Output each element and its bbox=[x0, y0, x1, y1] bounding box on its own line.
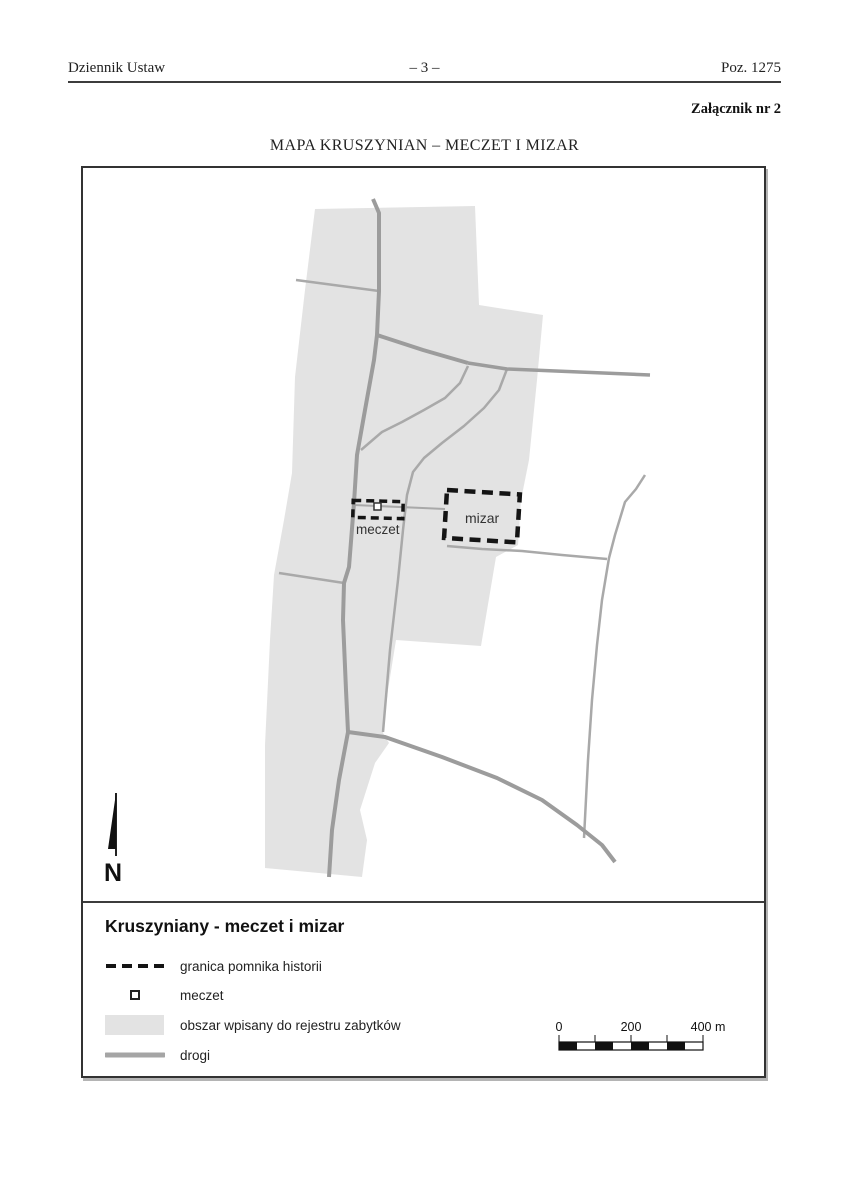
protected-area-polygon bbox=[265, 206, 543, 877]
road-east bbox=[584, 475, 645, 838]
page-header: Dziennik Ustaw – 3 – Poz. 1275 bbox=[68, 60, 781, 83]
area-sample bbox=[105, 1014, 165, 1036]
position-number: Poz. 1275 bbox=[543, 60, 781, 77]
scale-label-200: 200 bbox=[621, 1020, 642, 1034]
meczet-symbol bbox=[374, 503, 381, 510]
legend-row-meczet: meczet bbox=[105, 983, 764, 1007]
scale-bar: 0 200 400 m bbox=[553, 1019, 738, 1055]
legend-label-granica: granica pomnika historii bbox=[180, 959, 322, 974]
attachment-label: Załącznik nr 2 bbox=[691, 101, 781, 118]
scale-label-400: 400 m bbox=[691, 1020, 726, 1034]
north-label: N bbox=[104, 859, 122, 887]
map-document-title: MAPA KRUSZYNIAN – MECZET I MIZAR bbox=[0, 137, 849, 155]
mizar-label: mizar bbox=[465, 510, 500, 526]
legend-label-obszar: obszar wpisany do rejestru zabytków bbox=[180, 1018, 401, 1033]
dashed-boundary-sample bbox=[105, 961, 165, 971]
legend-label-meczet: meczet bbox=[180, 988, 224, 1003]
dashed-line-icon bbox=[105, 961, 165, 971]
map-frame: meczet mizar N Kruszyniany - meczet i mi… bbox=[81, 166, 766, 1078]
map-legend: Kruszyniany - meczet i mizar granica pom… bbox=[83, 901, 764, 1076]
legend-title: Kruszyniany - meczet i mizar bbox=[105, 916, 764, 937]
scale-ticks bbox=[559, 1035, 703, 1042]
legend-row-granica: granica pomnika historii bbox=[105, 954, 764, 978]
road-sample bbox=[105, 1051, 165, 1059]
scale-label-0: 0 bbox=[556, 1020, 563, 1034]
scale-cells bbox=[559, 1042, 703, 1050]
meczet-symbol-sample bbox=[105, 989, 165, 1001]
north-arrow-head bbox=[108, 793, 116, 849]
road-bottom-long bbox=[348, 732, 615, 862]
page-number: – 3 – bbox=[306, 60, 544, 77]
legend-label-drogi: drogi bbox=[180, 1048, 210, 1063]
area-swatch-icon bbox=[105, 1014, 165, 1036]
journal-name: Dziennik Ustaw bbox=[68, 60, 306, 77]
map-canvas: meczet mizar N bbox=[83, 168, 764, 901]
north-arrow: N bbox=[104, 793, 122, 887]
document-page: { "header": { "journal": "Dziennik Ustaw… bbox=[0, 0, 849, 1199]
road-line-icon bbox=[105, 1051, 165, 1059]
square-icon bbox=[105, 989, 165, 1001]
meczet-label: meczet bbox=[356, 522, 400, 537]
